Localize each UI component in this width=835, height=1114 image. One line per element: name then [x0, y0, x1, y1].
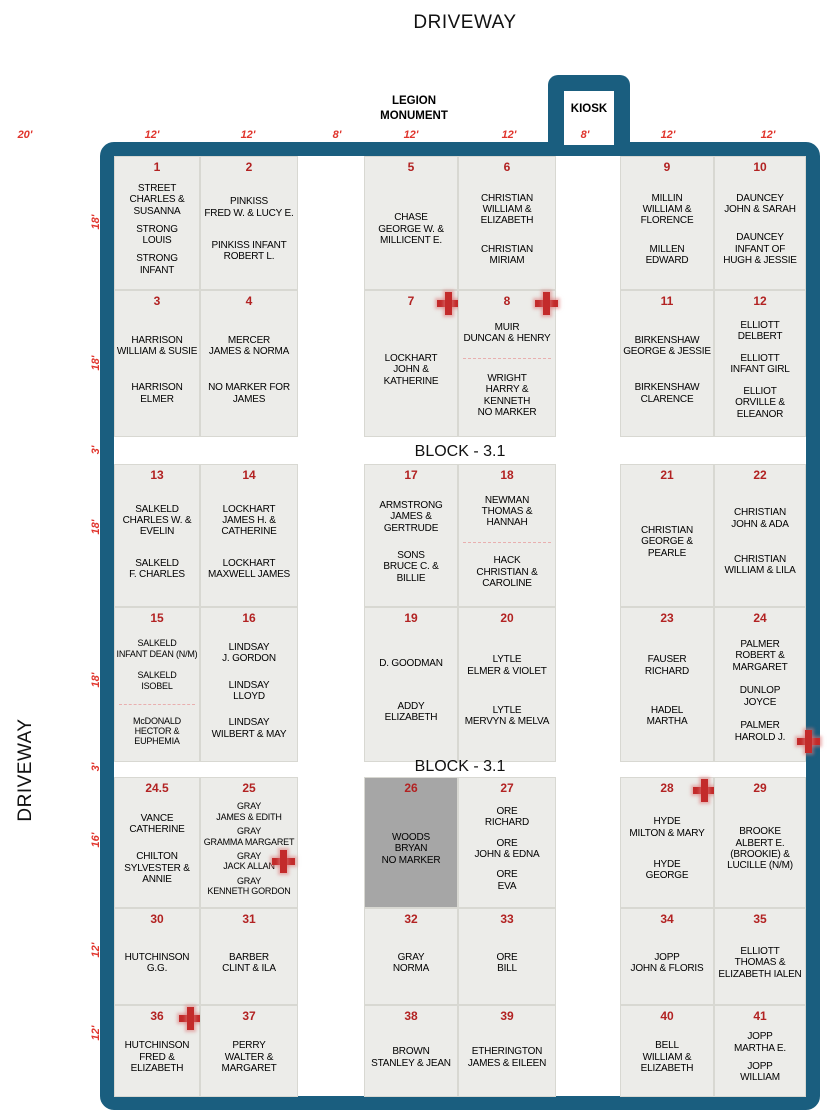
plot-number: 25 — [201, 778, 297, 795]
plot-name-group: CHRISTIAN WILLIAM & LILA — [716, 554, 804, 577]
plot-name-group: GRAY JAMES & EDITH — [202, 801, 296, 822]
plot-30: 30HUTCHINSON G.G. — [114, 908, 200, 1005]
plot-name-group: ORE RICHARD — [460, 806, 554, 829]
plot-name-section: LOCKHART JAMES H. & CATHERINELOCKHART MA… — [202, 484, 296, 600]
plot-name-list: PERRY WALTER & MARGARET — [201, 1023, 297, 1096]
plot-name-section: BROWN STANLEY & JEAN — [366, 1025, 456, 1090]
grave-marker-icon — [272, 850, 295, 873]
plot-name-group: LOCKHART MAXWELL JAMES — [202, 558, 296, 581]
plot-name-section: MILLIN WILLIAM & FLORENCEMILLEN EDWARD — [622, 176, 712, 283]
dimension-label-left: 3' — [90, 753, 104, 781]
plot-name-list: LYTLE ELMER & VIOLETLYTLE MERVYN & MELVA — [459, 625, 555, 761]
plot-name-list: ORE BILL — [459, 926, 555, 1004]
plot-17: 17ARMSTRONG JAMES & GERTRUDESONS BRUCE C… — [364, 464, 458, 607]
plot-number: 3 — [115, 291, 199, 308]
plot-name-section: SALKELD CHARLES W. & EVELINSALKELD F. CH… — [116, 484, 198, 600]
plot-name-group: MILLIN WILLIAM & FLORENCE — [622, 193, 712, 227]
plot-name-group: FAUSER RICHARD — [622, 654, 712, 677]
plot-name-group: NO MARKER FOR JAMES — [202, 382, 296, 405]
plot-26: 26WOODS BRYAN NO MARKER — [364, 777, 458, 908]
plot-name-section: ELLIOTT DELBERTELLIOTT INFANT GIRLELLIOT… — [716, 310, 804, 430]
plot-name-list: PINKISS FRED W. & LUCY E.PINKISS INFANT … — [201, 174, 297, 289]
plot-name-group: LINDSAY LLOYD — [202, 680, 296, 703]
plot-number: 13 — [115, 465, 199, 482]
plot-name-group: HYDE GEORGE — [622, 859, 712, 882]
plot-name-section: GRAY NORMA — [366, 928, 456, 998]
plot-name-group: GRAY KENNETH GORDON — [202, 876, 296, 897]
plot-name-group: MUIR DUNCAN & HENRY — [460, 322, 554, 345]
plot-31: 31BARBER CLINT & ILA — [200, 908, 298, 1005]
plot-name-list: LOCKHART JAMES H. & CATHERINELOCKHART MA… — [201, 482, 297, 606]
plot-28: 28HYDE MILTON & MARYHYDE GEORGE — [620, 777, 714, 908]
plot-name-group: NEWMAN THOMAS & HANNAH — [460, 495, 554, 529]
plot-number: 34 — [621, 909, 713, 926]
plot-name-section: CHRISTIAN GEORGE & PEARLE — [622, 484, 712, 600]
dimension-label-left: 18' — [90, 349, 104, 377]
plot-19: 19D. GOODMANADDY ELIZABETH — [364, 607, 458, 762]
plot-9: 9MILLIN WILLIAM & FLORENCEMILLEN EDWARD — [620, 156, 714, 290]
plot-name-section: PERRY WALTER & MARGARET — [202, 1025, 296, 1090]
plot-name-section: ORE BILL — [460, 928, 554, 998]
plot-name-list: ELLIOTT THOMAS & ELIZABETH IALEN — [715, 926, 805, 1004]
plot-name-group: HYDE MILTON & MARY — [622, 816, 712, 839]
plot-name-group: McDONALD HECTOR & EUPHEMIA — [119, 716, 195, 747]
plot-name-group: PERRY WALTER & MARGARET — [202, 1040, 296, 1074]
plot-2: 2PINKISS FRED W. & LUCY E.PINKISS INFANT… — [200, 156, 298, 290]
plot-name-list: HYDE MILTON & MARYHYDE GEORGE — [621, 795, 713, 907]
plot-number: 10 — [715, 157, 805, 174]
plot-name-group: HARRISON ELMER — [116, 382, 198, 405]
plot-name-section: BIRKENSHAW GEORGE & JESSIEBIRKENSHAW CLA… — [622, 310, 712, 430]
plot-name-section: MUIR DUNCAN & HENRY — [460, 310, 554, 356]
plot-34: 34JOPP JOHN & FLORIS — [620, 908, 714, 1005]
plot-name-group: GRAY NORMA — [366, 952, 456, 975]
plot-name-list: ETHERINGTON JAMES & EILEEN — [459, 1023, 555, 1096]
plot-35: 35ELLIOTT THOMAS & ELIZABETH IALEN — [714, 908, 806, 1005]
plot-number: 31 — [201, 909, 297, 926]
plot-name-list: MUIR DUNCAN & HENRYWRIGHT HARRY & KENNET… — [459, 308, 555, 436]
plot-name-group: CHASE GEORGE W. & MILLICENT E. — [366, 212, 456, 246]
plot-number: 24 — [715, 608, 805, 625]
plot-name-group: MILLEN EDWARD — [622, 244, 712, 267]
dimension-label-left: 12' — [90, 1019, 104, 1047]
plot-name-group: LOCKHART JAMES H. & CATHERINE — [202, 504, 296, 538]
plot-40: 40BELL WILLIAM & ELIZABETH — [620, 1005, 714, 1097]
plot-name-section: HARRISON WILLIAM & SUSIEHARRISON ELMER — [116, 310, 198, 430]
plot-name-group: BROOKE ALBERT E. (BROOKIE) & LUCILLE (N/… — [716, 826, 804, 872]
plot-23: 23FAUSER RICHARDHADEL MARTHA — [620, 607, 714, 762]
plot-name-section: DAUNCEY JOHN & SARAHDAUNCEY INFANT OF HU… — [716, 176, 804, 283]
plot-name-group: ORE JOHN & EDNA — [460, 838, 554, 861]
plot-name-section: JOPP MARTHA E.JOPP WILLIAM — [716, 1025, 804, 1090]
plot-1: 1STREET CHARLES & SUSANNASTRONG LOUISSTR… — [114, 156, 200, 290]
plot-name-section: JOPP JOHN & FLORIS — [622, 928, 712, 998]
dimension-label-top: 12' — [394, 129, 428, 141]
plot-name-list: HUTCHINSON G.G. — [115, 926, 199, 1004]
plot-name-group: HADEL MARTHA — [622, 705, 712, 728]
plot-name-group: ELLIOTT DELBERT — [716, 320, 804, 343]
plot-name-group: SALKELD ISOBEL — [116, 670, 198, 691]
plot-22: 22CHRISTIAN JOHN & ADACHRISTIAN WILLIAM … — [714, 464, 806, 607]
block-label-1: BLOCK - 3.1 — [114, 443, 806, 461]
dimension-label-left: 12' — [90, 936, 104, 964]
plot-name-group: DAUNCEY INFANT OF HUGH & JESSIE — [716, 232, 804, 266]
plot-name-section: CHRISTIAN WILLIAM & ELIZABETHCHRISTIAN M… — [460, 176, 554, 283]
dimension-label-left: 3' — [90, 436, 104, 464]
plot-name-group: ORE BILL — [460, 952, 554, 975]
plot-number: 21 — [621, 465, 713, 482]
plot-32: 32GRAY NORMA — [364, 908, 458, 1005]
plot-number: 40 — [621, 1006, 713, 1023]
plot-number: 1 — [115, 157, 199, 174]
plot-name-section: HYDE MILTON & MARYHYDE GEORGE — [622, 797, 712, 901]
plot-name-group: LINDSAY WILBERT & MAY — [202, 717, 296, 740]
plot-name-group: CHRISTIAN GEORGE & PEARLE — [622, 525, 712, 559]
plot-name-group: JOPP JOHN & FLORIS — [622, 952, 712, 975]
plot-name-list: DAUNCEY JOHN & SARAHDAUNCEY INFANT OF HU… — [715, 174, 805, 289]
plot-name-group: HACK CHRISTIAN & CAROLINE — [463, 555, 551, 589]
plot-number: 6 — [459, 157, 555, 174]
plot-6: 6CHRISTIAN WILLIAM & ELIZABETHCHRISTIAN … — [458, 156, 556, 290]
plot-name-section: HUTCHINSON G.G. — [116, 928, 198, 998]
plot-name-group: ELLIOTT THOMAS & ELIZABETH IALEN — [716, 946, 804, 980]
plot-name-group: SALKELD INFANT DEAN (N/M) — [116, 638, 198, 659]
plot-name-list: HUTCHINSON FRED & ELIZABETH — [115, 1023, 199, 1096]
plot-name-section: SALKELD INFANT DEAN (N/M)SALKELD ISOBEL — [116, 627, 198, 702]
plot-number: 33 — [459, 909, 555, 926]
plot-name-group: CHRISTIAN MIRIAM — [460, 244, 554, 267]
plot-name-list: WOODS BRYAN NO MARKER — [365, 795, 457, 907]
plot-37: 37PERRY WALTER & MARGARET — [200, 1005, 298, 1097]
plot-number: 26 — [365, 778, 457, 795]
plot-11: 11BIRKENSHAW GEORGE & JESSIEBIRKENSHAW C… — [620, 290, 714, 437]
plot-name-list: D. GOODMANADDY ELIZABETH — [365, 625, 457, 761]
plot-name-group: SALKELD F. CHARLES — [116, 558, 198, 581]
plot-name-group: CHRISTIAN WILLIAM & ELIZABETH — [460, 193, 554, 227]
plot-18: 18NEWMAN THOMAS & HANNAHHACK CHRISTIAN &… — [458, 464, 556, 607]
plot-name-section: CHRISTIAN JOHN & ADACHRISTIAN WILLIAM & … — [716, 484, 804, 600]
plot-39: 39ETHERINGTON JAMES & EILEEN — [458, 1005, 556, 1097]
plot-name-group: PINKISS INFANT ROBERT L. — [202, 240, 296, 263]
plot-name-group: PALMER HAROLD J. — [716, 720, 804, 743]
plot-name-section: NEWMAN THOMAS & HANNAH — [460, 484, 554, 540]
plot-name-group: D. GOODMAN — [366, 658, 456, 669]
plot-name-list: JOPP JOHN & FLORIS — [621, 926, 713, 1004]
plot-name-list: NEWMAN THOMAS & HANNAHHACK CHRISTIAN & C… — [459, 482, 555, 606]
plot-name-list: BROOKE ALBERT E. (BROOKIE) & LUCILLE (N/… — [715, 795, 805, 907]
plot-number: 12 — [715, 291, 805, 308]
dimension-label-top: 12' — [135, 129, 169, 141]
plot-38: 38BROWN STANLEY & JEAN — [364, 1005, 458, 1097]
plot-number: 18 — [459, 465, 555, 482]
plot-name-group: JOPP MARTHA E. — [716, 1031, 804, 1054]
plot-41: 41JOPP MARTHA E.JOPP WILLIAM — [714, 1005, 806, 1097]
plot-name-section: CHASE GEORGE W. & MILLICENT E. — [366, 176, 456, 283]
plot-name-section: McDONALD HECTOR & EUPHEMIA — [119, 704, 195, 755]
plot-8: 8MUIR DUNCAN & HENRYWRIGHT HARRY & KENNE… — [458, 290, 556, 437]
plot-number: 30 — [115, 909, 199, 926]
plot-name-list: MILLIN WILLIAM & FLORENCEMILLEN EDWARD — [621, 174, 713, 289]
dimension-label-top: 12' — [751, 129, 785, 141]
plot-24: 24PALMER ROBERT & MARGARETDUNLOP JOYCEPA… — [714, 607, 806, 762]
plot-4: 4MERCER JAMES & NORMANO MARKER FOR JAMES — [200, 290, 298, 437]
plot-name-group: HUTCHINSON FRED & ELIZABETH — [116, 1040, 198, 1074]
plot-36: 36HUTCHINSON FRED & ELIZABETH — [114, 1005, 200, 1097]
plot-number: 24.5 — [115, 778, 199, 795]
plot-name-section: ELLIOTT THOMAS & ELIZABETH IALEN — [716, 928, 804, 998]
plot-name-group: ETHERINGTON JAMES & EILEEN — [460, 1046, 554, 1069]
cemetery-block-map: DRIVEWAY DRIVEWAY KIOSK LEGION MONUMENT … — [0, 0, 835, 1114]
plot-name-list: HARRISON WILLIAM & SUSIEHARRISON ELMER — [115, 308, 199, 436]
dimension-label-left: 18' — [90, 666, 104, 694]
plot-14: 14LOCKHART JAMES H. & CATHERINELOCKHART … — [200, 464, 298, 607]
grave-marker-icon — [179, 1007, 202, 1030]
plot-number: 39 — [459, 1006, 555, 1023]
plot-number: 35 — [715, 909, 805, 926]
plot-name-list: CHASE GEORGE W. & MILLICENT E. — [365, 174, 457, 289]
plot-name-group: ELLIOT ORVILLE & ELEANOR — [716, 386, 804, 420]
plot-name-list: CHRISTIAN JOHN & ADACHRISTIAN WILLIAM & … — [715, 482, 805, 606]
driveway-label-left: DRIVEWAY — [15, 690, 35, 850]
plot-name-group: DAUNCEY JOHN & SARAH — [716, 193, 804, 216]
plot-name-section: ETHERINGTON JAMES & EILEEN — [460, 1025, 554, 1090]
plot-7: 7LOCKHART JOHN & KATHERINE — [364, 290, 458, 437]
plot-name-section: LYTLE ELMER & VIOLETLYTLE MERVYN & MELVA — [460, 627, 554, 755]
plot-name-list: ELLIOTT DELBERTELLIOTT INFANT GIRLELLIOT… — [715, 308, 805, 436]
plot-name-group: WRIGHT HARRY & KENNETH NO MARKER — [463, 373, 551, 419]
plot-number: 22 — [715, 465, 805, 482]
plot-name-list: PALMER ROBERT & MARGARETDUNLOP JOYCEPALM… — [715, 625, 805, 761]
plot-name-list: BROWN STANLEY & JEAN — [365, 1023, 457, 1096]
plot-name-section: BELL WILLIAM & ELIZABETH — [622, 1025, 712, 1090]
plot-name-group: BROWN STANLEY & JEAN — [366, 1046, 456, 1069]
plot-name-list: MERCER JAMES & NORMANO MARKER FOR JAMES — [201, 308, 297, 436]
plot-13: 13SALKELD CHARLES W. & EVELINSALKELD F. … — [114, 464, 200, 607]
plot-name-list: LOCKHART JOHN & KATHERINE — [365, 308, 457, 436]
plot-number: 19 — [365, 608, 457, 625]
plot-name-list: BELL WILLIAM & ELIZABETH — [621, 1023, 713, 1096]
dimension-label-left: 16' — [90, 826, 104, 854]
plot-name-section: GRAY JAMES & EDITHGRAY GRAMMA MARGARETGR… — [202, 797, 296, 901]
plot-name-group: STREET CHARLES & SUSANNA — [116, 183, 198, 217]
plot-name-section: D. GOODMANADDY ELIZABETH — [366, 627, 456, 755]
grave-marker-icon — [797, 730, 820, 753]
plot-name-section: VANCE CATHERINECHILTON SYLVESTER & ANNIE — [116, 797, 198, 901]
grave-marker-icon — [437, 292, 460, 315]
plot-number: 11 — [621, 291, 713, 308]
dimension-label-top: 12' — [651, 129, 685, 141]
block-label-2: BLOCK - 3.1 — [114, 758, 806, 776]
plot-name-group: WOODS BRYAN NO MARKER — [366, 832, 456, 866]
plot-name-group: HARRISON WILLIAM & SUSIE — [116, 335, 198, 358]
dimension-label-top: 20' — [8, 129, 42, 141]
plot-name-section: BARBER CLINT & ILA — [202, 928, 296, 998]
plot-name-list: CHRISTIAN WILLIAM & ELIZABETHCHRISTIAN M… — [459, 174, 555, 289]
plot-21: 21CHRISTIAN GEORGE & PEARLE — [620, 464, 714, 607]
plot-33: 33ORE BILL — [458, 908, 556, 1005]
legion-monument-label: LEGION MONUMENT — [355, 94, 473, 124]
plot-name-group: BIRKENSHAW CLARENCE — [622, 382, 712, 405]
plot-number: 23 — [621, 608, 713, 625]
plot-name-group: HUTCHINSON G.G. — [116, 952, 198, 975]
dimension-label-top: 12' — [492, 129, 526, 141]
plot-number: 5 — [365, 157, 457, 174]
plot-27: 27ORE RICHARDORE JOHN & EDNAORE EVA — [458, 777, 556, 908]
plot-name-group: SALKELD CHARLES W. & EVELIN — [116, 504, 198, 538]
plot-name-group: ADDY ELIZABETH — [366, 701, 456, 724]
plot-name-group: ARMSTRONG JAMES & GERTRUDE — [366, 500, 456, 534]
plot-name-group: ELLIOTT INFANT GIRL — [716, 353, 804, 376]
dimension-label-left: 18' — [90, 513, 104, 541]
plot-name-group: MERCER JAMES & NORMA — [202, 335, 296, 358]
plot-name-list: ORE RICHARDORE JOHN & EDNAORE EVA — [459, 795, 555, 907]
plot-name-group: LOCKHART JOHN & KATHERINE — [366, 353, 456, 387]
plot-name-group: JOPP WILLIAM — [716, 1061, 804, 1084]
plot-name-list: JOPP MARTHA E.JOPP WILLIAM — [715, 1023, 805, 1096]
plot-name-group: PALMER ROBERT & MARGARET — [716, 639, 804, 673]
plot-name-section: ARMSTRONG JAMES & GERTRUDESONS BRUCE C. … — [366, 484, 456, 600]
plot-name-group: SONS BRUCE C. & BILLIE — [366, 550, 456, 584]
dimension-label-top: 12' — [231, 129, 265, 141]
plot-16: 16LINDSAY J. GORDONLINDSAY LLOYDLINDSAY … — [200, 607, 298, 762]
plot-name-list: GRAY NORMA — [365, 926, 457, 1004]
plot-name-group: LINDSAY J. GORDON — [202, 642, 296, 665]
plot-25: 25GRAY JAMES & EDITHGRAY GRAMMA MARGARET… — [200, 777, 298, 908]
plot-name-section: FAUSER RICHARDHADEL MARTHA — [622, 627, 712, 755]
plot-name-list: STREET CHARLES & SUSANNASTRONG LOUISSTRO… — [115, 174, 199, 289]
plot-name-list: BARBER CLINT & ILA — [201, 926, 297, 1004]
plot-number: 20 — [459, 608, 555, 625]
grave-marker-icon — [535, 292, 558, 315]
plot-number: 16 — [201, 608, 297, 625]
plot-name-list: CHRISTIAN GEORGE & PEARLE — [621, 482, 713, 606]
plot-10: 10DAUNCEY JOHN & SARAHDAUNCEY INFANT OF … — [714, 156, 806, 290]
plot-name-section: PALMER ROBERT & MARGARETDUNLOP JOYCEPALM… — [716, 627, 804, 755]
plot-number: 27 — [459, 778, 555, 795]
plot-name-group: BARBER CLINT & ILA — [202, 952, 296, 975]
plot-name-group: LYTLE MERVYN & MELVA — [460, 705, 554, 728]
plot-name-section: HACK CHRISTIAN & CAROLINE — [463, 542, 551, 601]
plot-15: 15SALKELD INFANT DEAN (N/M)SALKELD ISOBE… — [114, 607, 200, 762]
plot-name-section: WRIGHT HARRY & KENNETH NO MARKER — [463, 358, 551, 430]
plot-name-group: PINKISS FRED W. & LUCY E. — [202, 196, 296, 219]
driveway-label-top: DRIVEWAY — [335, 12, 595, 34]
plot-name-list: SALKELD CHARLES W. & EVELINSALKELD F. CH… — [115, 482, 199, 606]
plot-number: 37 — [201, 1006, 297, 1023]
plot-name-group: LYTLE ELMER & VIOLET — [460, 654, 554, 677]
plot-number: 29 — [715, 778, 805, 795]
plot-3: 3HARRISON WILLIAM & SUSIEHARRISON ELMER — [114, 290, 200, 437]
plot-number: 41 — [715, 1006, 805, 1023]
plot-20: 20LYTLE ELMER & VIOLETLYTLE MERVYN & MEL… — [458, 607, 556, 762]
plot-name-section: ORE RICHARDORE JOHN & EDNAORE EVA — [460, 797, 554, 901]
plot-name-section: LOCKHART JOHN & KATHERINE — [366, 310, 456, 430]
plot-name-list: SALKELD INFANT DEAN (N/M)SALKELD ISOBELM… — [115, 625, 199, 761]
plot-name-section: LINDSAY J. GORDONLINDSAY LLOYDLINDSAY WI… — [202, 627, 296, 755]
plot-number: 38 — [365, 1006, 457, 1023]
plot-5: 5CHASE GEORGE W. & MILLICENT E. — [364, 156, 458, 290]
plot-name-group: BIRKENSHAW GEORGE & JESSIE — [622, 335, 712, 358]
plot-name-group: DUNLOP JOYCE — [716, 685, 804, 708]
plot-number: 17 — [365, 465, 457, 482]
plot-name-group: CHILTON SYLVESTER & ANNIE — [116, 851, 198, 885]
plot-name-group: VANCE CATHERINE — [116, 813, 198, 836]
plot-number: 15 — [115, 608, 199, 625]
kiosk-label: KIOSK — [571, 103, 607, 115]
plot-name-section: BROOKE ALBERT E. (BROOKIE) & LUCILLE (N/… — [716, 797, 804, 901]
plot-name-list: LINDSAY J. GORDONLINDSAY LLOYDLINDSAY WI… — [201, 625, 297, 761]
plot-name-section: HUTCHINSON FRED & ELIZABETH — [116, 1025, 198, 1090]
plot-name-list: ARMSTRONG JAMES & GERTRUDESONS BRUCE C. … — [365, 482, 457, 606]
grave-marker-icon — [693, 779, 716, 802]
plot-name-list: BIRKENSHAW GEORGE & JESSIEBIRKENSHAW CLA… — [621, 308, 713, 436]
plot-name-section: MERCER JAMES & NORMANO MARKER FOR JAMES — [202, 310, 296, 430]
plot-name-group: GRAY GRAMMA MARGARET — [202, 826, 296, 847]
plot-name-section: STREET CHARLES & SUSANNASTRONG LOUISSTRO… — [116, 176, 198, 283]
dimension-label-left: 18' — [90, 208, 104, 236]
plot-name-group: CHRISTIAN JOHN & ADA — [716, 507, 804, 530]
plot-number: 14 — [201, 465, 297, 482]
plot-number: 2 — [201, 157, 297, 174]
plot-name-section: PINKISS FRED W. & LUCY E.PINKISS INFANT … — [202, 176, 296, 283]
plot-name-group: STRONG INFANT — [116, 253, 198, 276]
plot-name-group: STRONG LOUIS — [116, 224, 198, 247]
plot-number: 4 — [201, 291, 297, 308]
dimension-label-top: 8' — [320, 129, 354, 141]
plot-number: 9 — [621, 157, 713, 174]
plot-name-group: ORE EVA — [460, 869, 554, 892]
plot-name-group: BELL WILLIAM & ELIZABETH — [622, 1040, 712, 1074]
dimension-label-top: 8' — [568, 129, 602, 141]
plot-24.5: 24.5VANCE CATHERINECHILTON SYLVESTER & A… — [114, 777, 200, 908]
plot-name-list: VANCE CATHERINECHILTON SYLVESTER & ANNIE — [115, 795, 199, 907]
plot-29: 29BROOKE ALBERT E. (BROOKIE) & LUCILLE (… — [714, 777, 806, 908]
plot-name-list: FAUSER RICHARDHADEL MARTHA — [621, 625, 713, 761]
plot-12: 12ELLIOTT DELBERTELLIOTT INFANT GIRLELLI… — [714, 290, 806, 437]
plot-number: 32 — [365, 909, 457, 926]
plot-name-section: WOODS BRYAN NO MARKER — [366, 797, 456, 901]
